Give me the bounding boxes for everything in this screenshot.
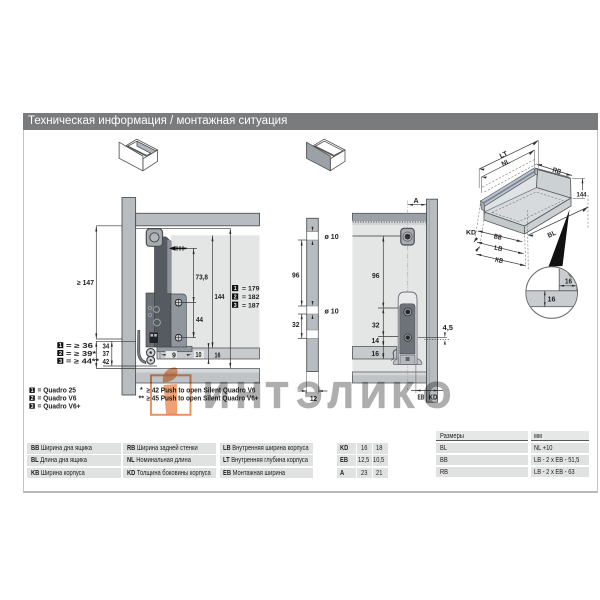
svg-text:37: 37 <box>103 351 110 358</box>
svg-text:3: 3 <box>59 359 62 365</box>
svg-text:ø 10: ø 10 <box>325 307 339 315</box>
svg-text:16: 16 <box>372 350 380 358</box>
svg-text:10: 10 <box>196 352 202 359</box>
svg-text:144: 144 <box>215 293 225 301</box>
svg-text:= ≥ 39*: = ≥ 39* <box>66 351 96 358</box>
svg-text:73,8: 73,8 <box>196 273 209 281</box>
svg-text:32: 32 <box>292 321 300 329</box>
svg-text:= Quadro 25: = Quadro 25 <box>38 388 77 395</box>
svg-text:96: 96 <box>292 272 300 280</box>
svg-text:16: 16 <box>215 352 221 359</box>
svg-text:KB: KB <box>494 257 503 266</box>
svg-text:4,5: 4,5 <box>443 324 454 332</box>
svg-text:14: 14 <box>372 337 380 345</box>
svg-text:16: 16 <box>548 296 556 304</box>
svg-text:9: 9 <box>172 352 176 359</box>
svg-text:44: 44 <box>196 316 203 324</box>
svg-text:3: 3 <box>234 303 237 309</box>
svg-text:BB: BB <box>493 233 502 242</box>
svg-text:= ≥ 44**: = ≥ 44** <box>66 359 99 366</box>
svg-text:2: 2 <box>31 396 34 402</box>
svg-text:16: 16 <box>565 277 572 285</box>
svg-text:= 187: = 187 <box>242 302 260 309</box>
svg-text:≥ 147: ≥ 147 <box>77 279 94 287</box>
svg-text:1: 1 <box>31 388 34 394</box>
svg-text:KD: KD <box>466 230 476 237</box>
svg-text:42: 42 <box>103 359 110 366</box>
svg-text:A: A <box>414 197 419 205</box>
svg-text:BL: BL <box>547 230 558 240</box>
svg-text:= 179: = 179 <box>242 286 260 293</box>
svg-text:= 182: = 182 <box>242 294 260 301</box>
svg-text:96: 96 <box>372 272 380 280</box>
svg-text:ИНТЭЛИКО: ИНТЭЛИКО <box>204 375 452 416</box>
svg-text:= ≥ 36: = ≥ 36 <box>66 343 93 350</box>
svg-text:*: * <box>140 387 143 394</box>
svg-text:1: 1 <box>234 286 237 292</box>
svg-text:2: 2 <box>234 295 237 301</box>
svg-text:**: ** <box>139 395 145 402</box>
svg-text:= Quadro V6+: = Quadro V6+ <box>38 403 81 410</box>
svg-text:3: 3 <box>31 404 34 410</box>
svg-text:LB: LB <box>494 245 503 254</box>
svg-text:2: 2 <box>59 351 62 357</box>
svg-text:144: 144 <box>577 192 587 199</box>
svg-text:ø 10: ø 10 <box>325 233 339 241</box>
svg-text:1: 1 <box>59 343 62 349</box>
svg-text:= Quadro V6: = Quadro V6 <box>38 396 77 403</box>
svg-text:32: 32 <box>372 322 380 330</box>
svg-text:34: 34 <box>103 343 110 350</box>
